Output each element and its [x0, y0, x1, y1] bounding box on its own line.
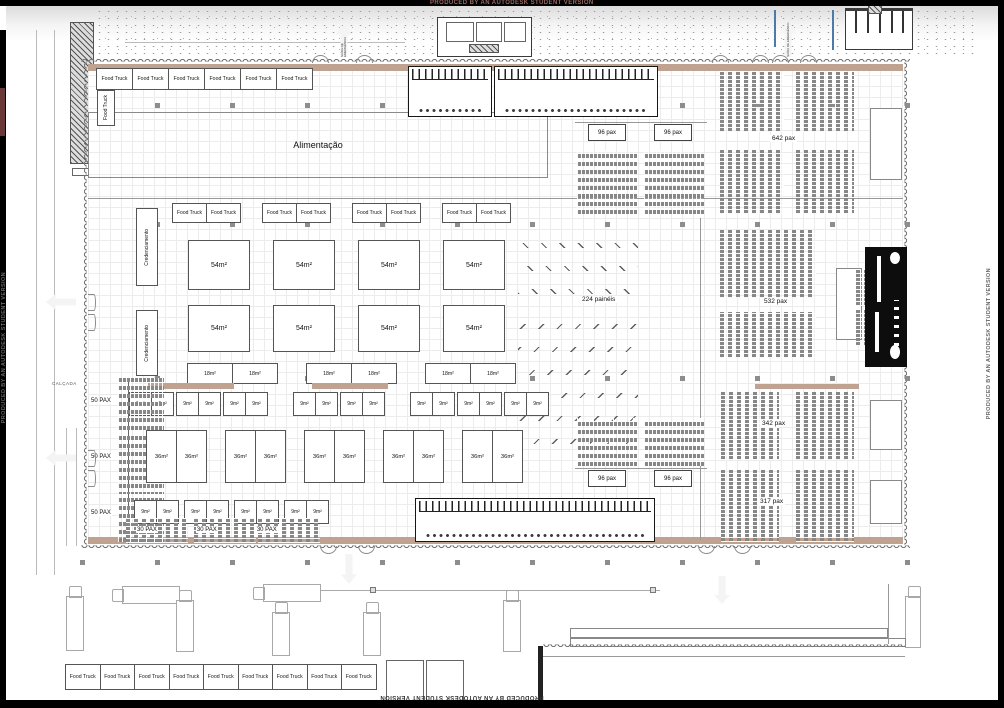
pavilion-tent-edge: [543, 644, 905, 650]
pax-30-label: 30 PAX: [196, 527, 218, 533]
sink-fixtures: [504, 107, 648, 114]
door-swing-arc: [88, 470, 96, 487]
road-line: [36, 30, 37, 575]
booth-18: 18m²: [470, 363, 516, 384]
partition-wall: [902, 11, 904, 33]
parked-truck: [363, 612, 381, 656]
booth-54: 54m²: [358, 240, 420, 290]
booth-9: 9m²: [293, 392, 316, 416]
saida-emergencia-label: SAÍDA DE EMERGÊNCIA: [341, 24, 347, 57]
food-truck-stall: Food Truck: [352, 203, 387, 223]
operator-seats: [856, 310, 865, 346]
pax-96-box: 96 pax: [588, 124, 626, 141]
food-truck-stall: Food Truck: [276, 68, 313, 90]
booth-9: 9m²: [223, 392, 246, 416]
restroom-block: [408, 66, 492, 117]
counter-table: [312, 383, 388, 389]
door-swing-arc: [320, 546, 337, 554]
emergency-exit-arrow: [46, 294, 76, 310]
food-truck-stall: Food Truck: [132, 68, 169, 90]
door-swing-arc: [88, 450, 96, 467]
service-building: [845, 8, 913, 50]
room: [446, 22, 474, 42]
food-truck-stall: Food Truck: [296, 203, 331, 223]
parked-truck: [503, 600, 521, 652]
restroom-block: [494, 66, 658, 117]
booth-row-54a: 54m²54m²54m²54m²: [188, 240, 505, 290]
booth-row-18: 18m²18m²18m²18m²18m²18m²: [188, 363, 545, 384]
booth-18: 18m²: [306, 363, 352, 384]
sidewalk-stipple-texture: [95, 8, 975, 57]
zone-alimentacao: Alimentação: [88, 112, 548, 178]
booth-9: 9m²: [432, 392, 455, 416]
partition-wall: [891, 11, 893, 33]
door-swing-arc: [358, 546, 375, 554]
floor-plan-sheet: Alimentação Food TruckFood TruckFood Tru…: [0, 0, 1004, 708]
food-truck-stall: Food Truck: [386, 203, 421, 223]
seating-columns-317: [796, 470, 854, 542]
booth-9: 9m²: [504, 392, 527, 416]
food-truck-row-bottom: Food TruckFood TruckFood TruckFood Truck…: [66, 664, 377, 690]
toilet-stalls: [419, 501, 651, 512]
door-swing-arc: [734, 546, 751, 554]
watermark-left: PRODUCED BY AN AUTODESK STUDENT VERSION: [1, 272, 7, 423]
food-truck-stall: Food Truck: [341, 664, 377, 690]
pax-50-label: 50 PAX: [90, 510, 112, 516]
partition-wall: [855, 11, 857, 33]
food-truck-stall: Food Truck: [272, 664, 308, 690]
seating-rows: [577, 150, 637, 214]
seating-columns-642: [796, 72, 854, 132]
counter-table: [755, 384, 859, 389]
pax-642-label: 642 pax: [770, 135, 797, 142]
food-truck-stall: Food Truck: [238, 664, 274, 690]
emergency-exit-arrow: [341, 554, 357, 584]
pax-96-box: 96 pax: [588, 470, 626, 487]
pax-30-label: 30 PAX: [256, 527, 278, 533]
stage-truss: [875, 312, 879, 352]
booth-18: 18m²: [232, 363, 278, 384]
zone-alimentacao-label: Alimentação: [293, 140, 343, 150]
pax96-bottom-labels: 96 pax96 pax: [588, 470, 692, 487]
seating-columns-317: [721, 470, 779, 542]
zone-credenciamento: Credenciamento: [136, 208, 158, 286]
support-area-box: [870, 400, 902, 450]
dimension-marker: [370, 587, 376, 593]
booth-9: 9m²: [315, 392, 338, 416]
pax96-top-labels: 96 pax96 pax: [588, 124, 692, 141]
aisle-line: [700, 218, 701, 540]
booth-9: 9m²: [457, 392, 480, 416]
booth-54: 54m²: [443, 240, 505, 290]
food-truck-stall: Food Truck: [206, 203, 241, 223]
stage-truss: [877, 256, 881, 302]
seating-columns-532: [720, 312, 816, 358]
restroom-block: [415, 498, 655, 542]
pavilion-step: [570, 628, 888, 638]
booth-36: 36m²: [383, 430, 414, 483]
partition-wall: [867, 11, 869, 33]
parked-truck: [66, 596, 84, 651]
seating-columns-342: [796, 392, 854, 460]
tent-wall-left: [81, 62, 87, 545]
booth-18: 18m²: [351, 363, 397, 384]
pavilion-line: [888, 584, 889, 644]
food-truck-stall: Food Truck: [262, 203, 297, 223]
panel-field-upper: [518, 234, 638, 294]
grate-hatch: [469, 44, 499, 53]
booth-9: 9m²: [245, 392, 268, 416]
curb-line: [76, 428, 77, 546]
seating-columns-532: [720, 230, 816, 298]
booth-36: 36m²: [176, 430, 207, 483]
saida-emergencia-label: SAÍDA DE EMERGÊNCIA: [787, 22, 790, 57]
food-truck-stall: Food Truck: [100, 664, 136, 690]
booth-9: 9m²: [362, 392, 385, 416]
parked-truck: [176, 600, 194, 652]
frame-right: [998, 0, 1004, 708]
seating-rows: [577, 418, 637, 466]
booth-row-9a: 9m²9m²9m²9m²9m²9m²9m²9m²9m²9m²9m²9m²9m²9…: [130, 392, 552, 416]
booth-36: 36m²: [146, 430, 177, 483]
watermark-right: PRODUCED BY AN AUTODESK STUDENT VERSION: [986, 268, 992, 419]
pax-50-label: 50 PAX: [90, 398, 112, 404]
booth-54: 54m²: [273, 305, 335, 352]
booth-36: 36m²: [492, 430, 523, 483]
dimension-line: [290, 590, 660, 591]
stage-tech-block: [865, 247, 907, 367]
pax-317-label: 317 pax: [758, 498, 785, 505]
toilet-stalls: [412, 69, 488, 80]
booth-36: 36m²: [413, 430, 444, 483]
support-area-box: [870, 480, 902, 524]
booth-9: 9m²: [340, 392, 363, 416]
parked-truck: [905, 596, 921, 648]
sidewalk-edge-line: [125, 42, 405, 43]
frame-bottom: [0, 700, 1004, 708]
curb-line: [66, 428, 67, 546]
sink-fixtures: [425, 532, 645, 539]
door-swing-arc: [88, 314, 96, 331]
seating-columns-642: [796, 150, 854, 214]
booth-54: 54m²: [188, 305, 250, 352]
booth-36: 36m²: [255, 430, 286, 483]
watermark-top: PRODUCED BY AN AUTODESK STUDENT VERSION: [430, 0, 594, 6]
seating-rows: [644, 150, 704, 214]
emergency-exit-arrow: [46, 450, 76, 466]
zone-credenciamento: Credenciamento: [136, 310, 158, 376]
booth-36: 36m²: [304, 430, 335, 483]
pax-96-box: 96 pax: [654, 470, 692, 487]
food-truck-stall: Food Truck: [442, 203, 477, 223]
booth-54: 54m²: [443, 305, 505, 352]
food-truck-stall: Food Truck: [172, 203, 207, 223]
toilet-stalls: [498, 69, 654, 80]
booth-9: 9m²: [479, 392, 502, 416]
partition-wall: [879, 11, 881, 33]
parked-truck: [122, 586, 180, 604]
booth-54: 54m²: [188, 240, 250, 290]
door-swing-arc: [88, 294, 96, 311]
food-truck-row-top: Food TruckFood TruckFood TruckFood Truck…: [97, 68, 313, 90]
booth-9: 9m²: [198, 392, 221, 416]
seating-edge-line: [575, 468, 707, 469]
utility-mark: [832, 10, 834, 50]
seating-50pax: [118, 378, 164, 430]
food-truck-stall: Food Truck: [169, 664, 205, 690]
tent-wall-bottom: [81, 545, 910, 551]
booth-9: 9m²: [176, 392, 199, 416]
seating-edge-line: [575, 122, 707, 123]
paineis-label: 224 painéis: [580, 296, 617, 303]
perimeter-post-row: [80, 560, 910, 565]
sink-fixtures: [418, 107, 482, 114]
food-truck-stall: Food Truck: [203, 664, 239, 690]
booth-18: 18m²: [187, 363, 233, 384]
booth-9: 9m²: [526, 392, 549, 416]
room: [476, 22, 502, 42]
pavilion-wall: [538, 646, 543, 700]
door-swing-arc: [698, 546, 715, 554]
booth-36: 36m²: [225, 430, 256, 483]
watermark-bottom: PRODUCED BY AN AUTODESK STUDENT VERSION: [380, 694, 544, 700]
food-truck-stall-vertical: Food Truck: [97, 90, 115, 126]
support-area-box: [870, 108, 902, 180]
stage-fan: [890, 345, 900, 359]
booth-36: 36m²: [334, 430, 365, 483]
booth-row-36: 36m²36m²36m²36m²36m²36m²36m²36m²36m²36m²: [147, 430, 542, 483]
emergency-exit-arrow: [714, 576, 730, 604]
pax-96-box: 96 pax: [654, 124, 692, 141]
calcada-label: CALÇADA: [50, 381, 79, 386]
stage-fan: [890, 252, 900, 264]
utility-mark: [774, 10, 776, 47]
food-truck-stall: Food Truck: [168, 68, 205, 90]
dimension-marker: [650, 587, 656, 593]
booth-9: 9m²: [410, 392, 433, 416]
food-truck-stall: Food Truck: [307, 664, 343, 690]
food-truck-stall: Food Truck: [134, 664, 170, 690]
parked-truck: [272, 612, 290, 656]
food-truck-stall: Food Truck: [65, 664, 101, 690]
booth-54: 54m²: [358, 305, 420, 352]
operator-seats: [856, 270, 865, 306]
food-truck-stall: Food Truck: [476, 203, 511, 223]
seating-columns-642: [720, 150, 784, 214]
pax-342-label: 342 pax: [760, 420, 787, 427]
pax-30-label: 30 PAX: [136, 527, 158, 533]
food-truck-row-middle: Food TruckFood TruckFood TruckFood Truck…: [173, 203, 533, 223]
parked-truck: [263, 584, 321, 602]
seating-rows: [644, 418, 704, 466]
booth-36: 36m²: [462, 430, 493, 483]
booth-54: 54m²: [273, 240, 335, 290]
watermark-fragment: [0, 88, 5, 136]
food-truck-stall: Food Truck: [96, 68, 133, 90]
seating-columns-642: [720, 72, 784, 132]
food-truck-stall: Food Truck: [240, 68, 277, 90]
pavilion-line: [543, 656, 905, 657]
room: [504, 22, 526, 42]
food-truck-stall: Food Truck: [204, 68, 241, 90]
booth-row-54b: 54m²54m²54m²54m²: [188, 305, 505, 352]
booth-18: 18m²: [425, 363, 471, 384]
pax-532-label: 532 pax: [762, 298, 789, 305]
pax30-labels: 30 PAX30 PAX30 PAX: [136, 527, 278, 533]
entrance-building: [437, 17, 532, 57]
